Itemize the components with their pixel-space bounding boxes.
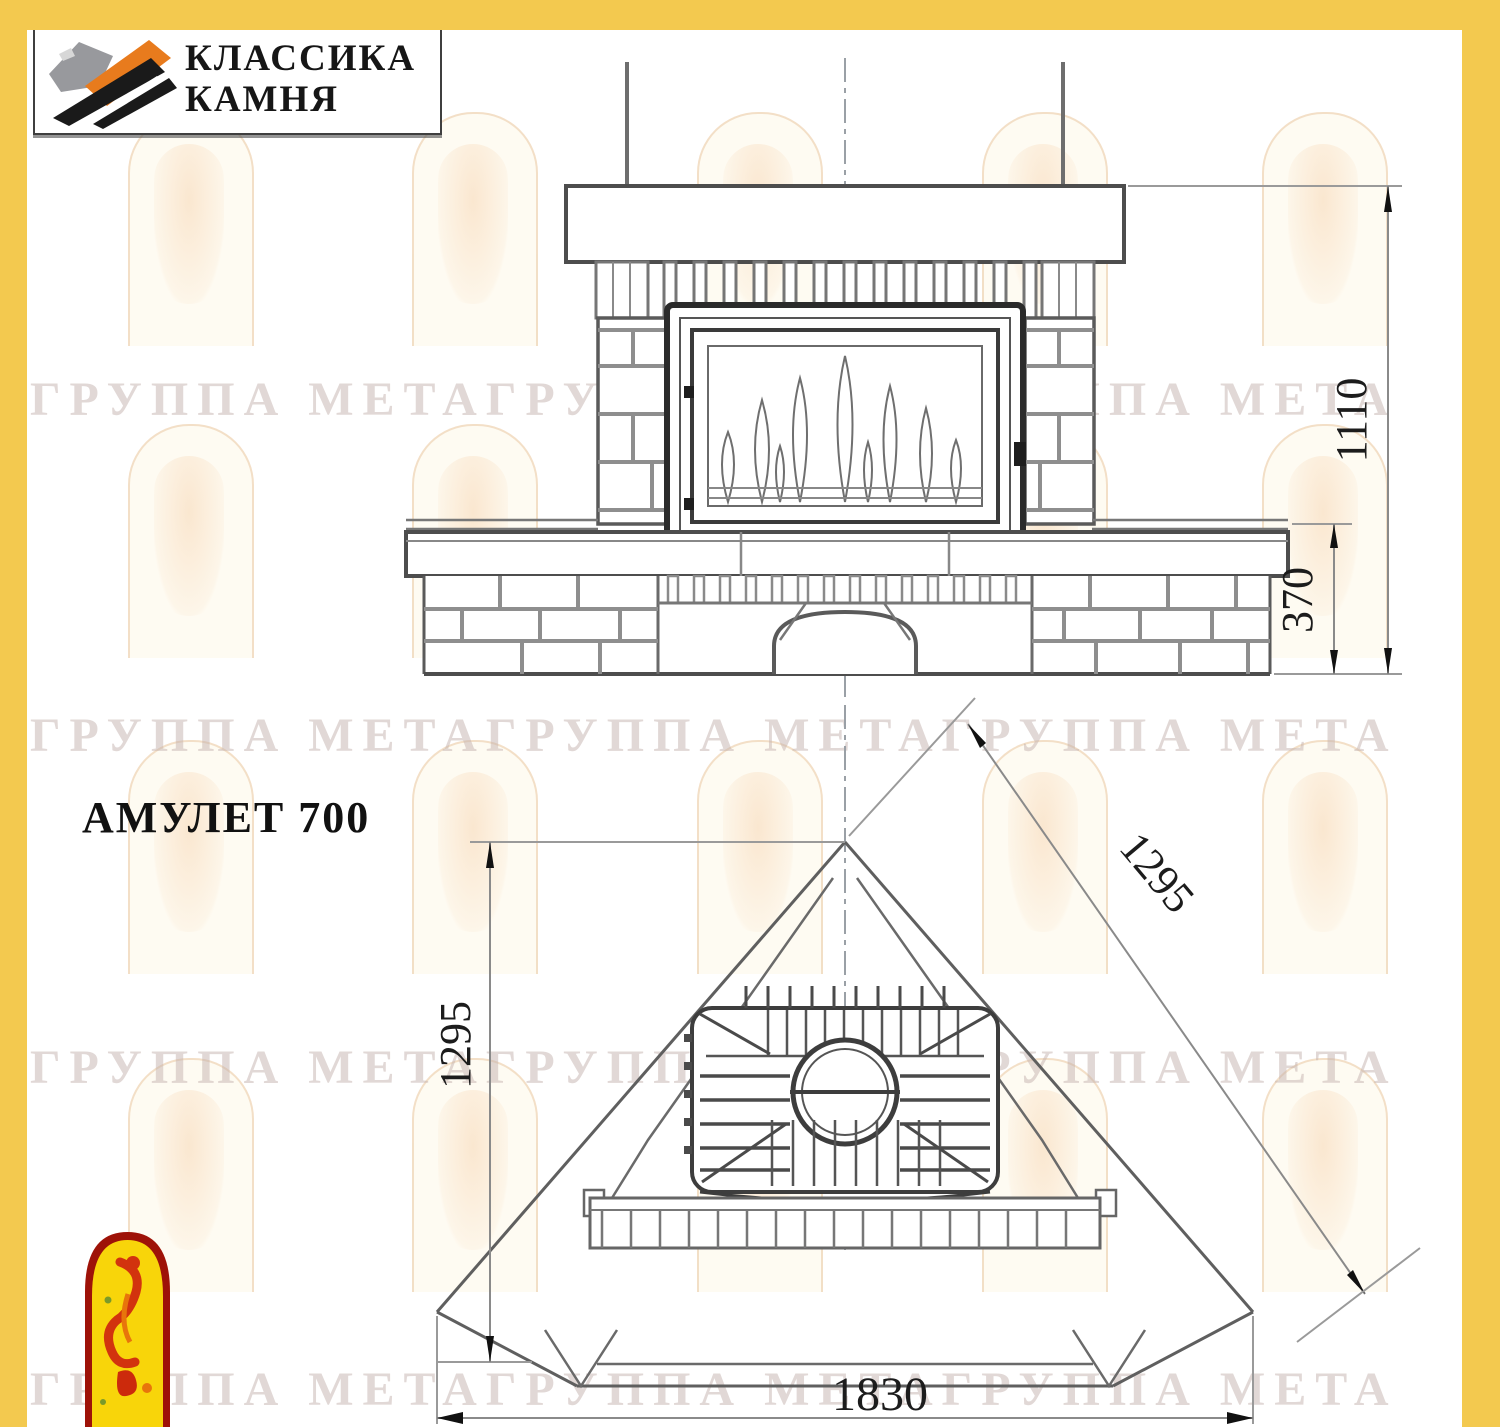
dim-label-total-height: 1110 [1327, 378, 1376, 463]
stone-logo-icon [41, 34, 186, 129]
brick-pier-left [598, 318, 667, 524]
insert-plan [684, 986, 998, 1201]
dim-label-depth-left: 1295 [431, 1001, 480, 1089]
bench-body [424, 576, 1270, 674]
door-handle [1014, 442, 1026, 466]
technical-drawing: 1110 370 [0, 0, 1500, 1427]
hinge-bottom [684, 498, 694, 510]
brick-pier-right [1025, 318, 1094, 524]
bench-slab [406, 532, 1288, 576]
dim-label-bench-height: 370 [1273, 567, 1322, 633]
logo-line-1: КЛАССИКА [185, 38, 416, 79]
model-title: АМУЛЕТ 700 [82, 792, 370, 843]
hearth-band [584, 1190, 1116, 1248]
page-frame-left [0, 0, 27, 1427]
page: ГРУППА МЕТАГРУППА МЕТАГРУППА МЕТА ГРУППА… [0, 0, 1500, 1427]
mantel-shelf [566, 186, 1124, 262]
wood-niche-arch [774, 612, 916, 674]
page-frame-right [1462, 0, 1500, 1427]
logo-line-2: КАМНЯ [185, 79, 416, 120]
page-frame-top [0, 0, 1500, 30]
front-view: 1110 370 [406, 58, 1402, 700]
hinge-top [684, 386, 694, 398]
plan-view: 1295 1295 1830 [431, 698, 1420, 1424]
dim-label-width: 1830 [832, 1368, 928, 1421]
company-logo-text: КЛАССИКА КАМНЯ [185, 38, 416, 120]
company-logo: КЛАССИКА КАМНЯ [33, 28, 442, 135]
dim-label-depth-right: 1295 [1110, 823, 1204, 922]
emblem-badge [85, 1232, 170, 1427]
